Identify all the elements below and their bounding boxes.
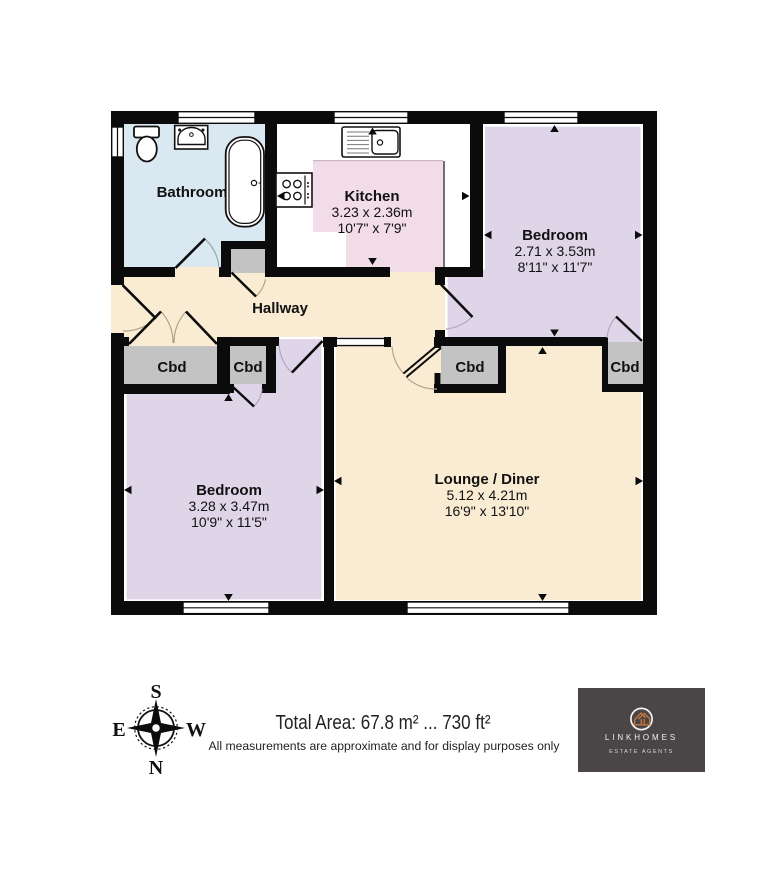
svg-text:E: E <box>112 719 125 741</box>
svg-text:8'11" x 11'7": 8'11" x 11'7" <box>518 259 593 275</box>
svg-text:3.23 x 2.36m: 3.23 x 2.36m <box>332 204 413 220</box>
svg-text:Cbd: Cbd <box>610 359 639 376</box>
svg-text:N: N <box>149 757 164 779</box>
svg-text:S: S <box>150 681 161 703</box>
svg-text:Kitchen: Kitchen <box>344 188 399 205</box>
svg-text:5.12 x 4.21m: 5.12 x 4.21m <box>447 487 528 503</box>
svg-text:16'9" x 13'10": 16'9" x 13'10" <box>445 503 530 519</box>
svg-text:All measurements are approxima: All measurements are approximate and for… <box>209 739 561 753</box>
svg-text:Total Area: 67.8 m² ... 730 ft: Total Area: 67.8 m² ... 730 ft² <box>276 712 491 734</box>
svg-text:2.71 x 3.53m: 2.71 x 3.53m <box>515 243 596 259</box>
svg-text:Cbd: Cbd <box>157 359 186 376</box>
svg-text:3.28 x 3.47m: 3.28 x 3.47m <box>189 498 270 514</box>
svg-text:Lounge / Diner: Lounge / Diner <box>435 471 540 488</box>
svg-text:ESTATE AGENTS: ESTATE AGENTS <box>609 749 674 755</box>
svg-text:Cbd: Cbd <box>233 359 262 376</box>
svg-text:Bedroom: Bedroom <box>196 482 262 499</box>
svg-text:10'7" x 7'9": 10'7" x 7'9" <box>338 220 407 236</box>
svg-text:Bathroom: Bathroom <box>157 184 228 201</box>
svg-text:Cbd: Cbd <box>455 359 484 376</box>
svg-text:LINKHOMES: LINKHOMES <box>605 733 678 742</box>
svg-text:Hallway: Hallway <box>252 300 309 317</box>
svg-text:Bedroom: Bedroom <box>522 227 588 244</box>
svg-text:10'9" x 11'5": 10'9" x 11'5" <box>191 514 267 530</box>
svg-text:W: W <box>186 719 206 741</box>
